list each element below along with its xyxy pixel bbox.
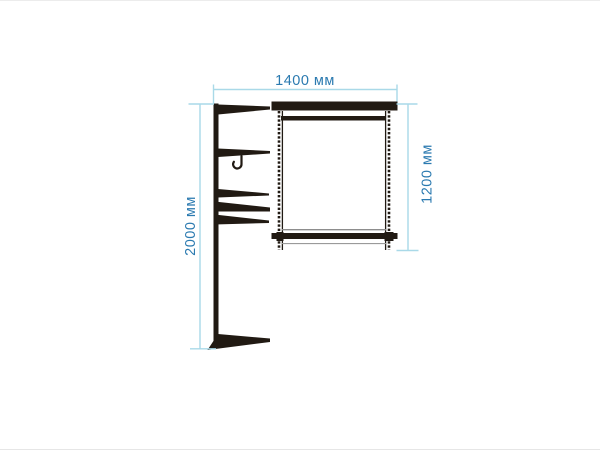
right-bar-junction — [385, 232, 394, 241]
slanted-shelf — [215, 202, 271, 212]
total-height-dimension: 2000 мм — [183, 104, 216, 349]
hanging-hook — [233, 156, 241, 168]
bottom-cross-bar — [272, 233, 398, 239]
shelving-unit-drawing: 1400 мм 2000 мм 1200 мм — [0, 1, 600, 451]
left-wall-post — [214, 104, 219, 349]
top-shelf-board — [272, 102, 398, 111]
left-perforated-upright — [279, 111, 282, 250]
frame-height-dimension-label: 1200 мм — [420, 144, 436, 204]
technical-drawing-canvas: 1400 мм 2000 мм 1200 мм — [0, 0, 600, 450]
top-bracket-arm — [218, 105, 270, 115]
slanted-bracket-1 — [218, 189, 269, 198]
base-foot — [208, 334, 271, 350]
frame-height-dimension: 1200 мм — [397, 104, 436, 251]
left-wall-rail-assembly — [208, 104, 271, 351]
left-bar-junction — [277, 232, 284, 241]
right-frame-assembly — [272, 102, 398, 251]
width-dimension: 1400 мм — [214, 73, 398, 104]
width-dimension-label: 1400 мм — [275, 73, 335, 89]
hanging-rod — [281, 116, 386, 121]
slanted-bracket-2 — [215, 215, 270, 225]
total-height-dimension-label: 2000 мм — [183, 196, 199, 256]
right-perforated-upright — [386, 111, 389, 250]
hook-bracket-arm — [218, 149, 270, 158]
